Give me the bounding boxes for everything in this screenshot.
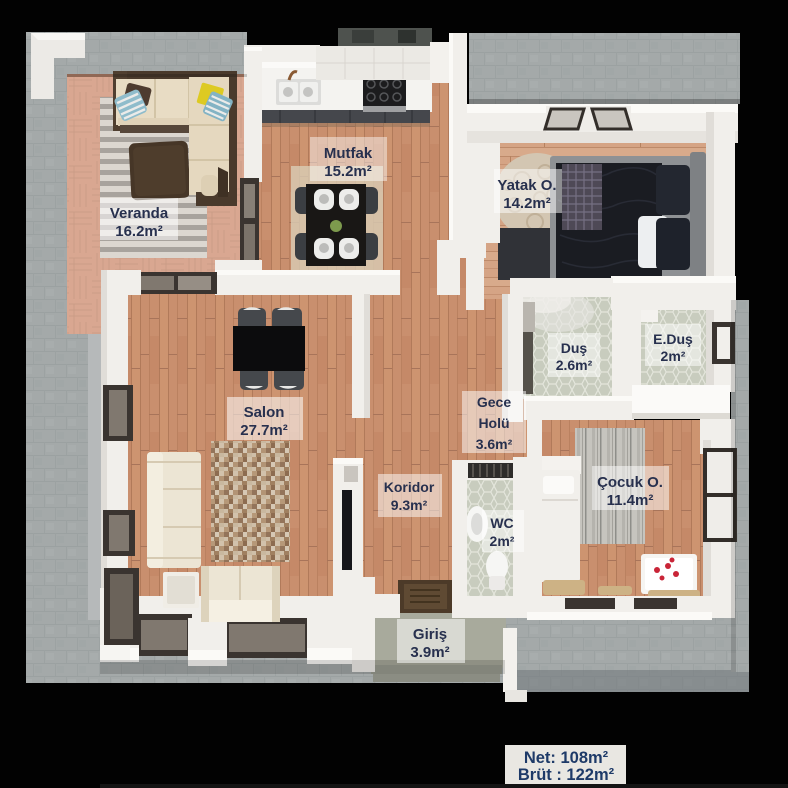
svg-text:Giriş: Giriş xyxy=(413,626,447,643)
svg-text:Net: 108m²: Net: 108m² xyxy=(524,749,609,767)
svg-text:E.Duş: E.Duş xyxy=(653,331,693,347)
svg-text:16.2m²: 16.2m² xyxy=(115,223,163,240)
svg-text:9.3m²: 9.3m² xyxy=(391,497,428,513)
svg-text:Duş: Duş xyxy=(561,340,588,356)
svg-text:14.2m²: 14.2m² xyxy=(503,195,551,212)
svg-text:2.6m²: 2.6m² xyxy=(556,357,593,373)
svg-text:11.4m²: 11.4m² xyxy=(607,492,654,509)
svg-text:Çocuk O.: Çocuk O. xyxy=(597,474,663,491)
svg-text:Mutfak: Mutfak xyxy=(324,145,373,162)
svg-text:15.2m²: 15.2m² xyxy=(324,163,372,180)
svg-text:Holü: Holü xyxy=(478,415,509,431)
svg-text:Gece: Gece xyxy=(477,394,511,410)
svg-text:Koridor: Koridor xyxy=(384,479,435,495)
svg-text:Yatak O.: Yatak O. xyxy=(497,177,556,194)
svg-text:2m²: 2m² xyxy=(490,533,515,549)
svg-text:Salon: Salon xyxy=(244,404,285,421)
svg-text:WC: WC xyxy=(490,515,513,531)
svg-text:2m²: 2m² xyxy=(661,348,686,364)
svg-text:Veranda: Veranda xyxy=(110,205,169,222)
svg-text:3.9m²: 3.9m² xyxy=(410,644,449,661)
svg-text:Brüt : 122m²: Brüt : 122m² xyxy=(518,766,615,784)
svg-text:3.6m²: 3.6m² xyxy=(476,436,513,452)
svg-text:27.7m²: 27.7m² xyxy=(240,422,288,439)
